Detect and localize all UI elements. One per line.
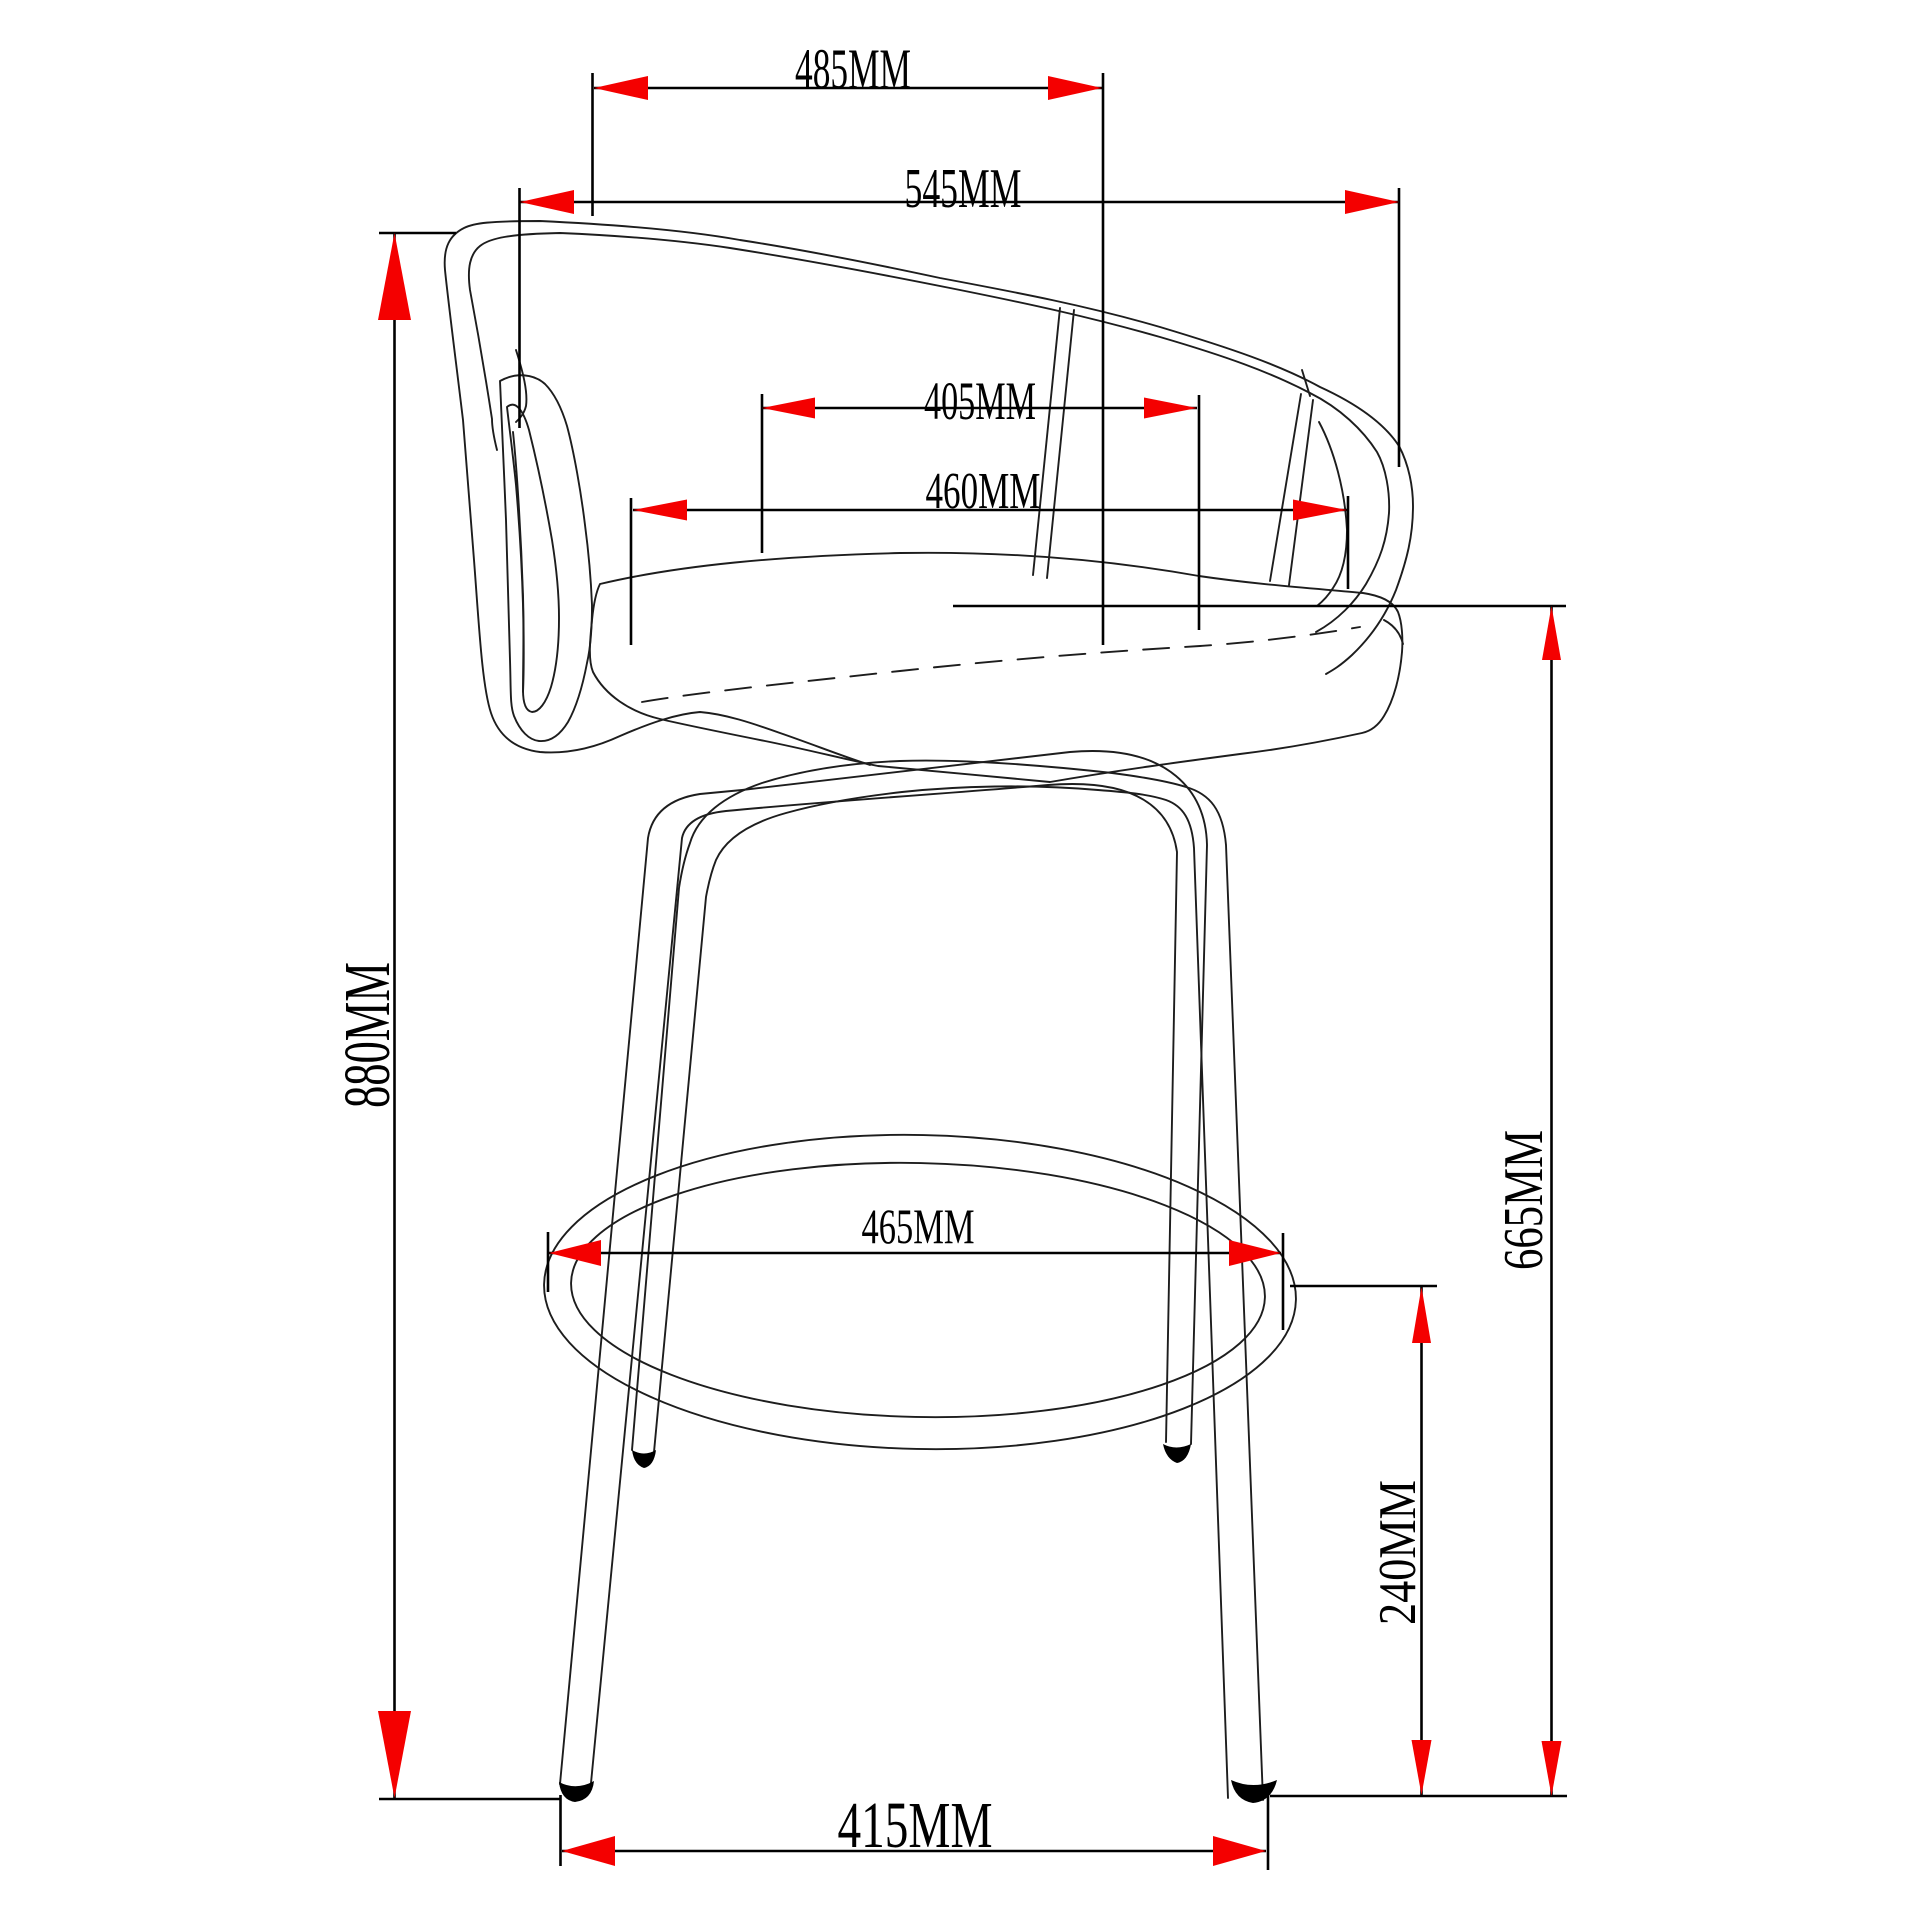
svg-text:240MM: 240MM: [1369, 1480, 1427, 1625]
svg-text:545MM: 545MM: [905, 158, 1022, 220]
svg-text:460MM: 460MM: [926, 463, 1041, 520]
svg-text:665MM: 665MM: [1493, 1130, 1555, 1270]
svg-text:880MM: 880MM: [331, 962, 404, 1108]
svg-text:465MM: 465MM: [862, 1198, 975, 1254]
svg-text:405MM: 405MM: [924, 371, 1036, 431]
svg-text:485MM: 485MM: [795, 38, 911, 101]
svg-text:415MM: 415MM: [838, 1789, 993, 1862]
